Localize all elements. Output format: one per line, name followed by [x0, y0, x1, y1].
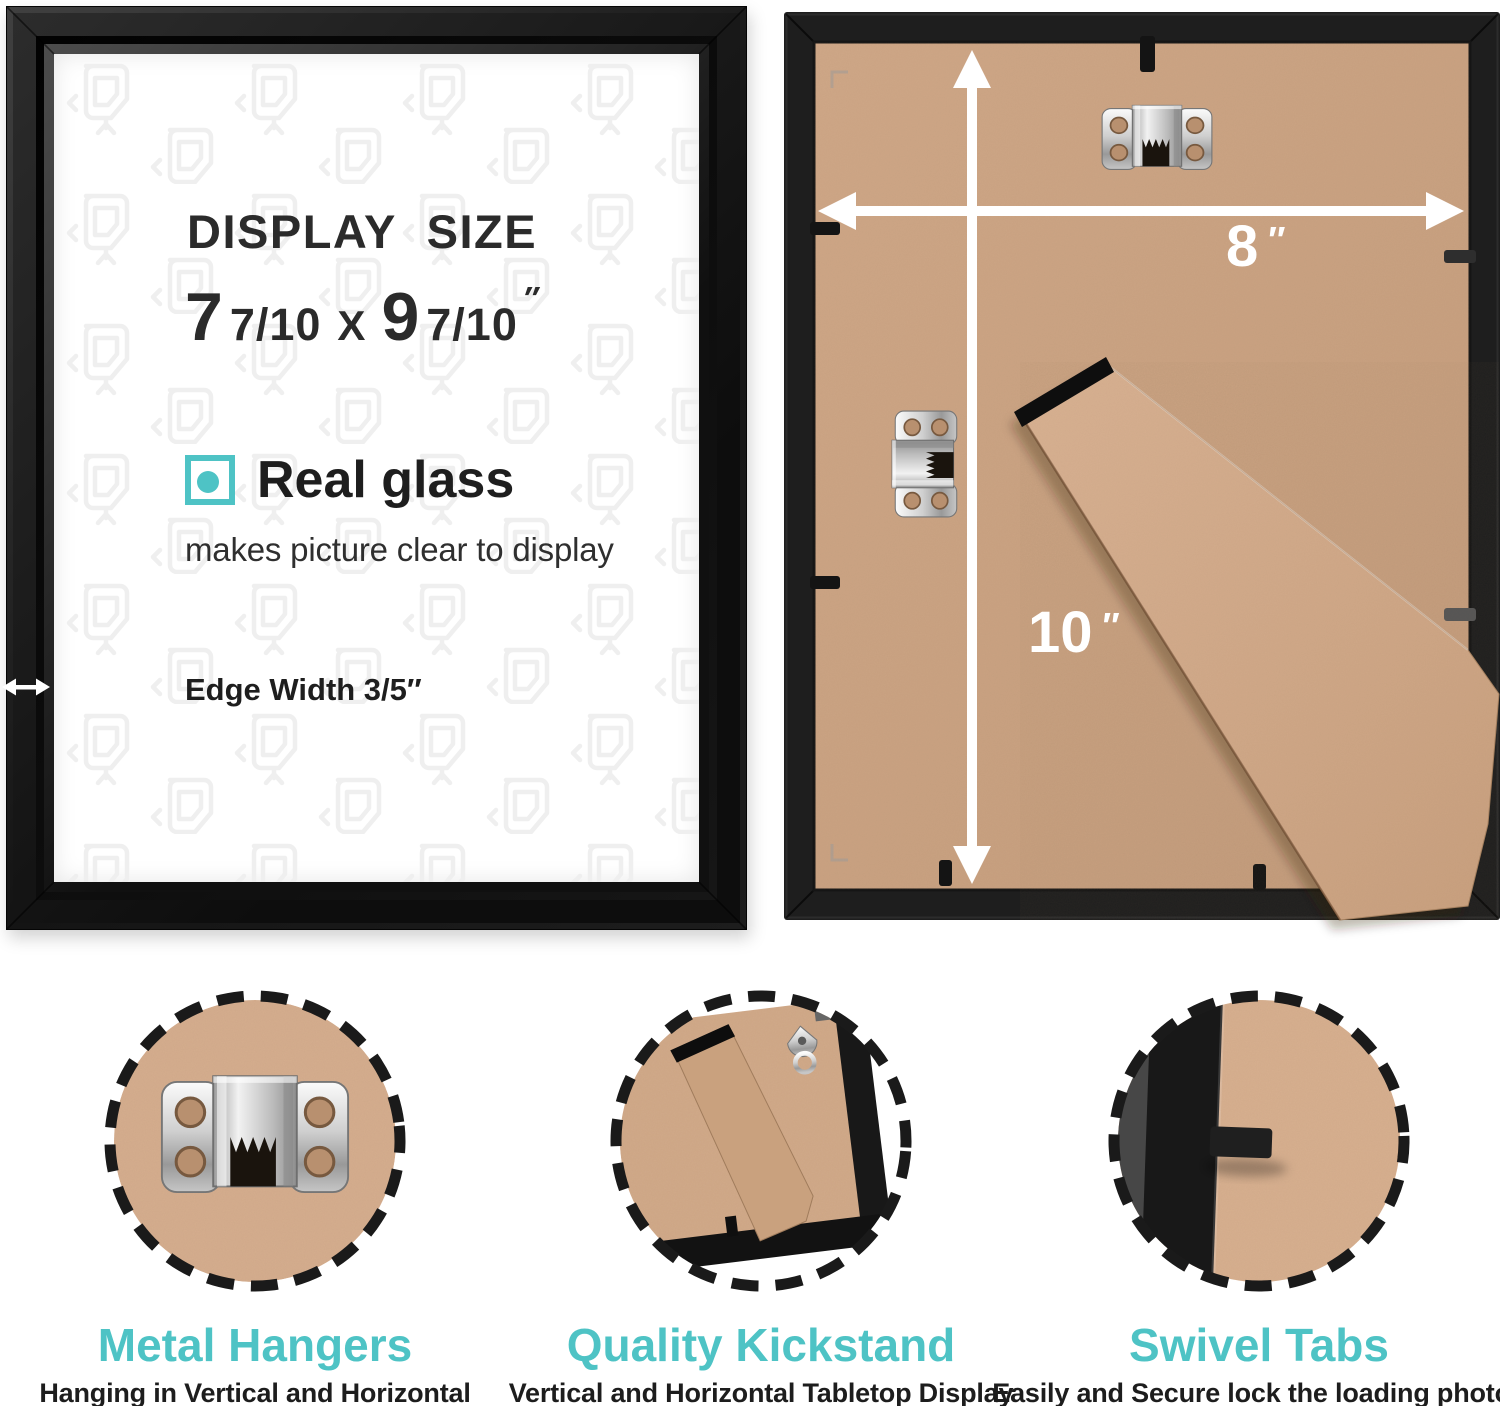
teal-square-dot-icon: [185, 455, 235, 505]
metal-hangers-detail-photo: [90, 976, 420, 1306]
feature-title: Metal Hangers: [98, 1321, 412, 1369]
kickstand-detail-photo: [596, 976, 926, 1306]
swivel-tab: [1444, 250, 1476, 263]
dimension-separator: X: [337, 302, 365, 350]
display-size-value: 7 7/10 X 9 7/10 ″: [185, 278, 538, 356]
feature-title: Quality Kickstand: [567, 1321, 956, 1369]
feature-swivel-tabs: Swivel Tabs Easily and Secure lock the l…: [1094, 976, 1424, 1406]
width-fraction: 7/10: [230, 299, 322, 351]
feature-metal-hangers: Metal Hangers Hanging in Vertical and Ho…: [90, 976, 420, 1406]
glass-feature-line: Real glass: [185, 450, 514, 510]
feature-description: Easily and Secure lock the loading photo…: [992, 1378, 1500, 1406]
edge-width-label: Edge Width 3/5″: [185, 672, 422, 708]
swivel-tab: [810, 222, 840, 235]
swivel-tab: [1444, 608, 1476, 621]
glass-feature-title: Real glass: [257, 450, 514, 510]
feature-quality-kickstand: Quality Kickstand Vertical and Horizonta…: [596, 976, 926, 1406]
sawtooth-hanger-icon: [1102, 105, 1212, 169]
edge-width-arrow-icon: [0, 669, 52, 705]
feature-description: Hanging in Vertical and Horizontal: [39, 1378, 470, 1406]
swivel-tab: [939, 860, 952, 886]
frame-front-view: DISPLAY SIZE 7 7/10 X 9 7/10 ″ Real glas…: [6, 6, 747, 930]
swivel-tab: [810, 576, 840, 589]
height-whole: 9: [381, 278, 419, 356]
frame-glass-area: DISPLAY SIZE 7 7/10 X 9 7/10 ″ Real glas…: [54, 54, 699, 882]
swivel-tab: [1140, 36, 1155, 72]
swivel-tabs-detail-photo: [1094, 976, 1424, 1306]
sawtooth-hanger-icon: [162, 1076, 348, 1192]
feature-description: Vertical and Horizontal Tabletop Display: [509, 1378, 1014, 1406]
glass-feature-description: makes picture clear to display: [185, 531, 614, 569]
width-whole: 7: [185, 278, 223, 356]
sawtooth-hanger-icon: [892, 411, 957, 517]
height-fraction: 7/10: [426, 299, 518, 351]
swivel-tab: [1209, 1126, 1272, 1158]
product-infographic: DISPLAY SIZE 7 7/10 X 9 7/10 ″ Real glas…: [0, 0, 1500, 1406]
swivel-tab: [1253, 864, 1266, 890]
frame-back-view: 8″ 10″: [784, 12, 1500, 942]
feature-title: Swivel Tabs: [1129, 1321, 1389, 1369]
back-view-graphic: 8″ 10″: [784, 12, 1500, 942]
display-size-label: DISPLAY SIZE: [187, 204, 537, 259]
